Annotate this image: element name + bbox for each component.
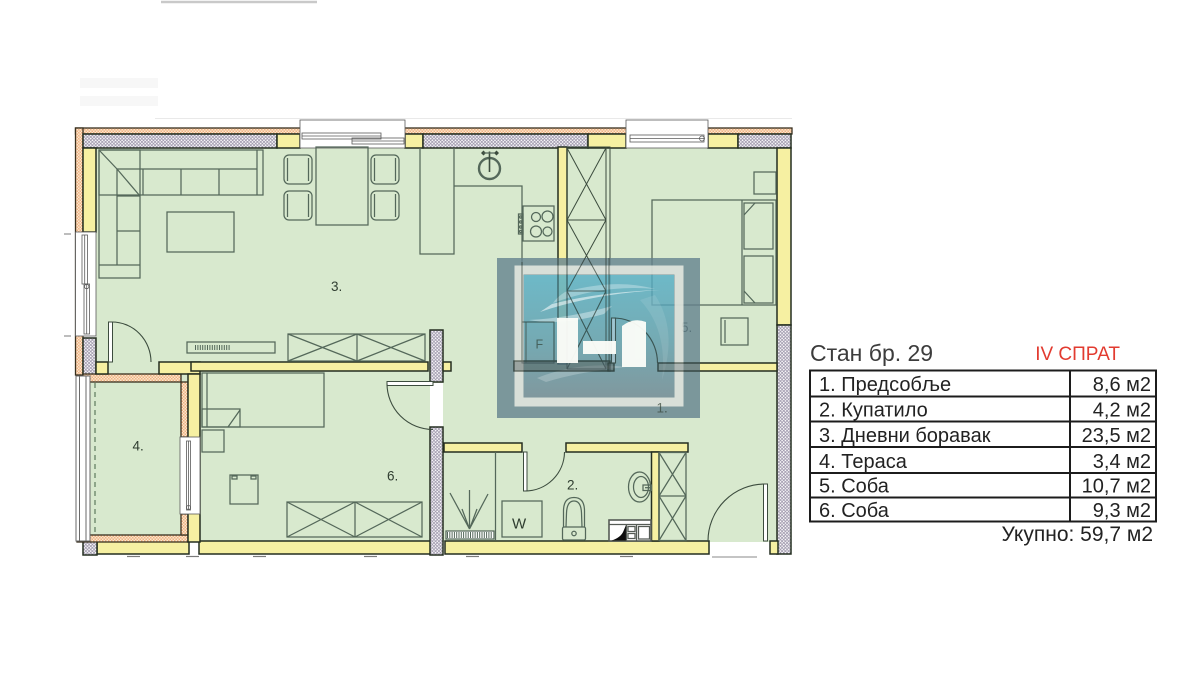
svg-text:8,6 м2: 8,6 м2	[1093, 374, 1151, 396]
svg-text:10,7 м2: 10,7 м2	[1082, 476, 1151, 498]
svg-text:F: F	[536, 338, 544, 352]
svg-text:Стан бр. 29: Стан бр. 29	[810, 340, 933, 366]
svg-text:W: W	[512, 516, 527, 533]
svg-text:3.: 3.	[331, 279, 342, 294]
svg-text:IV СПРАТ: IV СПРАТ	[1035, 344, 1120, 365]
svg-text:Укупно: 59,7 м2: Укупно: 59,7 м2	[1002, 523, 1153, 546]
svg-text:23,5 м2: 23,5 м2	[1082, 425, 1151, 447]
svg-text:1. Предсобље: 1. Предсобље	[819, 374, 951, 396]
svg-text:4. Тераса: 4. Тераса	[819, 451, 908, 473]
svg-text:4,2 м2: 4,2 м2	[1093, 400, 1151, 422]
svg-text:5. Соба: 5. Соба	[819, 476, 890, 498]
svg-text:2. Купатило: 2. Купатило	[819, 400, 928, 422]
svg-text:3,4 м2: 3,4 м2	[1093, 451, 1151, 473]
svg-text:3. Дневни боравак: 3. Дневни боравак	[819, 425, 991, 447]
svg-text:6.: 6.	[387, 469, 398, 484]
svg-text:9,3 м2: 9,3 м2	[1093, 500, 1151, 522]
svg-text:4.: 4.	[133, 439, 144, 454]
svg-text:6. Соба: 6. Соба	[819, 500, 890, 522]
svg-text:1.: 1.	[657, 401, 668, 416]
svg-text:2.: 2.	[567, 478, 578, 493]
